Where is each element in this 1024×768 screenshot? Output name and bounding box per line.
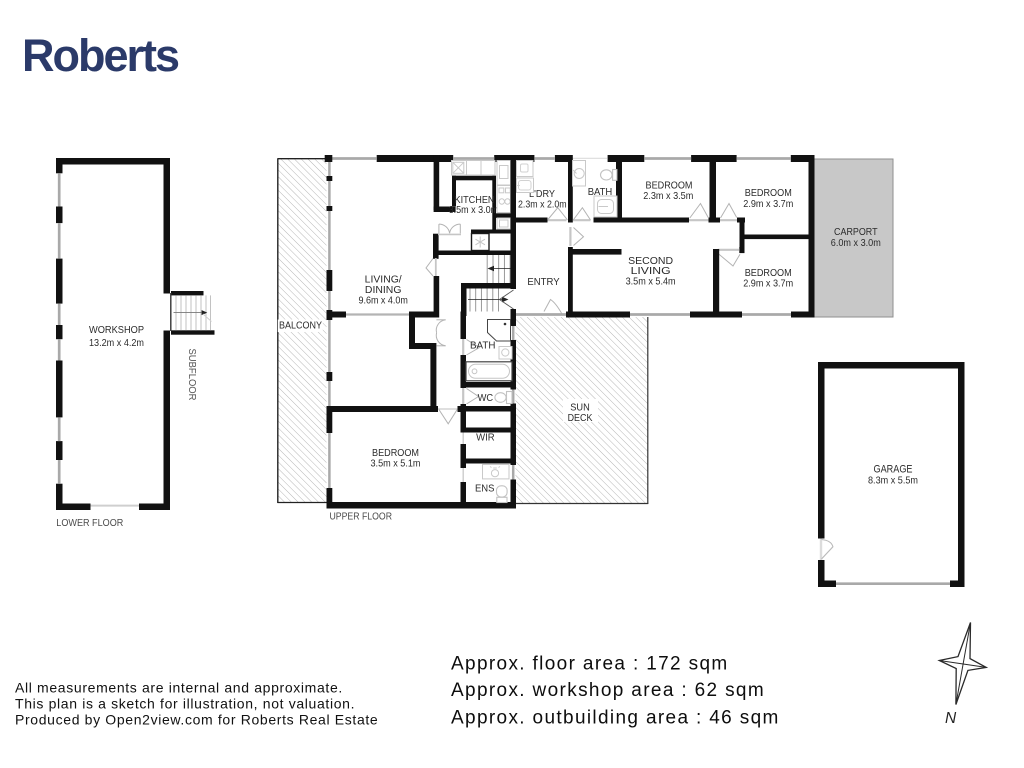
svg-text:Approx. workshop area : 62 sqm: Approx. workshop area : 62 sqm [451, 680, 765, 701]
svg-text:2.9m x 3.7m: 2.9m x 3.7m [743, 199, 793, 210]
svg-text:BEDROOM: BEDROOM [745, 188, 792, 199]
svg-text:WIR: WIR [476, 433, 495, 444]
svg-text:DECK: DECK [568, 413, 593, 424]
svg-text:2.3m x 2.0m: 2.3m x 2.0m [518, 200, 567, 211]
svg-text:9.6m x 4.0m: 9.6m x 4.0m [358, 296, 408, 307]
svg-text:3.5m x 5.1m: 3.5m x 5.1m [371, 459, 421, 470]
svg-text:BEDROOM: BEDROOM [745, 268, 792, 279]
svg-text:LIVING: LIVING [631, 266, 671, 277]
svg-text:ENS: ENS [475, 484, 495, 495]
svg-text:2.3m x 3.5m: 2.3m x 3.5m [643, 191, 693, 202]
svg-text:SUBFLOOR: SUBFLOOR [186, 349, 197, 401]
svg-text:3.5m x 3.0m: 3.5m x 3.0m [449, 205, 498, 216]
svg-text:CARPORT: CARPORT [834, 227, 878, 238]
svg-text:BALCONY: BALCONY [279, 321, 322, 332]
svg-text:8.3m x 5.5m: 8.3m x 5.5m [868, 475, 918, 487]
svg-text:6.0m x 3.0m: 6.0m x 3.0m [831, 238, 881, 249]
svg-text:LIVING/: LIVING/ [365, 275, 402, 286]
svg-text:BATH: BATH [470, 341, 495, 352]
svg-text:WC: WC [478, 393, 494, 404]
svg-text:Approx. outbuilding area : 46: Approx. outbuilding area : 46 sqm [451, 708, 780, 729]
svg-text:BEDROOM: BEDROOM [372, 448, 419, 459]
svg-text:Produced by Open2view.com for: Produced by Open2view.com for Roberts Re… [15, 712, 378, 728]
svg-text:Roberts: Roberts [22, 30, 179, 81]
svg-text:DINING: DINING [365, 285, 402, 296]
svg-text:UPPER FLOOR: UPPER FLOOR [330, 512, 393, 523]
svg-text:N: N [945, 710, 957, 727]
svg-text:All measurements are internal: All measurements are internal and approx… [15, 680, 343, 696]
svg-text:13.2m x 4.2m: 13.2m x 4.2m [89, 338, 144, 349]
svg-text:SECOND: SECOND [628, 256, 673, 267]
svg-text:3.5m x 5.4m: 3.5m x 5.4m [626, 277, 676, 288]
svg-text:2.9m x 3.7m: 2.9m x 3.7m [743, 279, 793, 290]
svg-text:This plan is a sketch for illu: This plan is a sketch for illustration, … [15, 696, 355, 712]
svg-text:WORKSHOP: WORKSHOP [89, 325, 144, 336]
svg-text:Approx. floor area : 172 sqm: Approx. floor area : 172 sqm [451, 654, 729, 675]
svg-text:BEDROOM: BEDROOM [646, 181, 693, 192]
svg-text:GARAGE: GARAGE [874, 463, 913, 475]
svg-text:LOWER FLOOR: LOWER FLOOR [56, 518, 123, 529]
svg-text:ENTRY: ENTRY [527, 277, 559, 288]
